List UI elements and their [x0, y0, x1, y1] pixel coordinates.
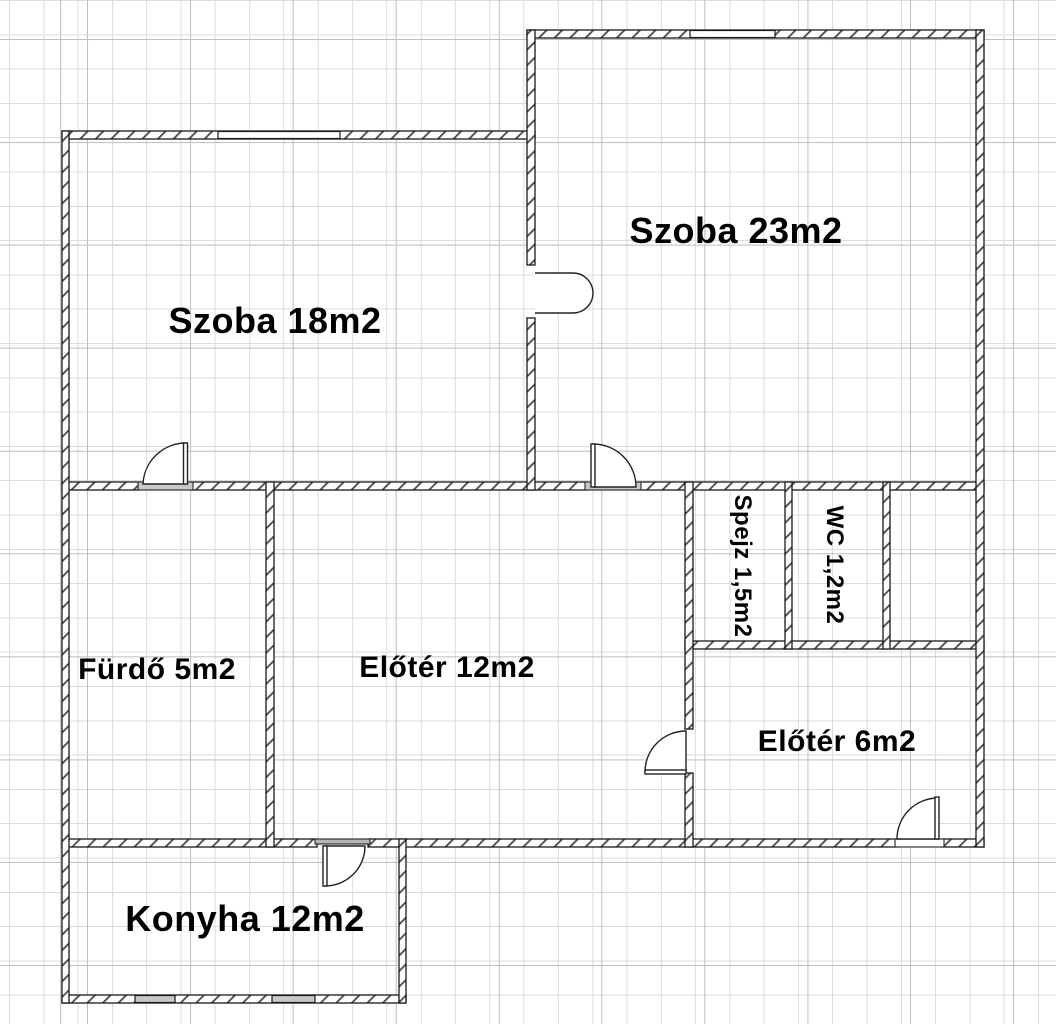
room-label-wc: WC 1,2m2: [822, 506, 846, 625]
wall-eloter-divider-a: [685, 482, 693, 729]
threshold-konyha-door: [315, 839, 370, 844]
room-label-spejz: Spejz 1,5m2: [730, 495, 754, 638]
threshold-entry-door: [895, 839, 944, 847]
wall-konyha-bottom: [62, 995, 406, 1003]
room-label-szoba-23: Szoba 23m2: [629, 213, 842, 249]
door-szoba23-eloter12: [591, 444, 636, 487]
room-label-eloter-12: Előtér 12m2: [359, 653, 535, 683]
wall-band-bottom-b: [368, 839, 897, 847]
wall-spejz-wc-divider: [785, 482, 792, 649]
door-leaf: [645, 770, 686, 774]
door-arc: [593, 444, 636, 487]
wall-right-outer: [976, 30, 984, 847]
door-leaf: [591, 444, 595, 487]
windows-layer: [135, 31, 775, 1003]
door-szoba18-furdo: [143, 443, 188, 484]
room-label-konyha: Konyha 12m2: [125, 901, 365, 937]
doors-layer: [143, 273, 939, 886]
door-eloter12-eloter6: [645, 731, 686, 774]
wall-furdo-divider: [266, 482, 274, 847]
door-leaf: [184, 443, 188, 484]
door-arc: [325, 846, 365, 886]
wall-spejz-wc-bottom: [685, 641, 984, 649]
wall-left-outer: [62, 131, 69, 1003]
door-arc: [535, 273, 593, 313]
door-arc: [143, 443, 186, 484]
window-szoba18: [218, 132, 340, 139]
door-arc: [897, 798, 938, 839]
door-eloter6-entry: [897, 797, 939, 839]
window-szoba23: [690, 31, 775, 38]
room-label-szoba-18: Szoba 18m2: [168, 303, 381, 339]
wall-konyha-right: [399, 839, 406, 1003]
door-konyha: [323, 846, 365, 886]
floor-plan: Szoba 23m2 Szoba 18m2 Fürdő 5m2 Előtér 1…: [0, 0, 1056, 1024]
wall-band-bottom-a: [62, 839, 317, 847]
wall-szoba-divider-a: [527, 30, 535, 265]
room-label-eloter-6: Előtér 6m2: [758, 727, 916, 757]
floor-plan-drawing: [0, 0, 1056, 1024]
window-konyha-1: [135, 996, 175, 1003]
wall-wc-right: [883, 482, 890, 649]
door-leaf: [935, 797, 939, 839]
wall-mid-a: [62, 482, 140, 490]
door-arc: [645, 731, 686, 772]
door-szoba18-szoba23: [535, 273, 593, 313]
wall-eloter-divider-b: [685, 773, 693, 847]
window-konyha-2: [272, 996, 315, 1003]
door-leaf: [323, 846, 327, 886]
room-label-furdo: Fürdő 5m2: [78, 655, 236, 685]
wall-szoba-divider-b: [527, 318, 535, 490]
